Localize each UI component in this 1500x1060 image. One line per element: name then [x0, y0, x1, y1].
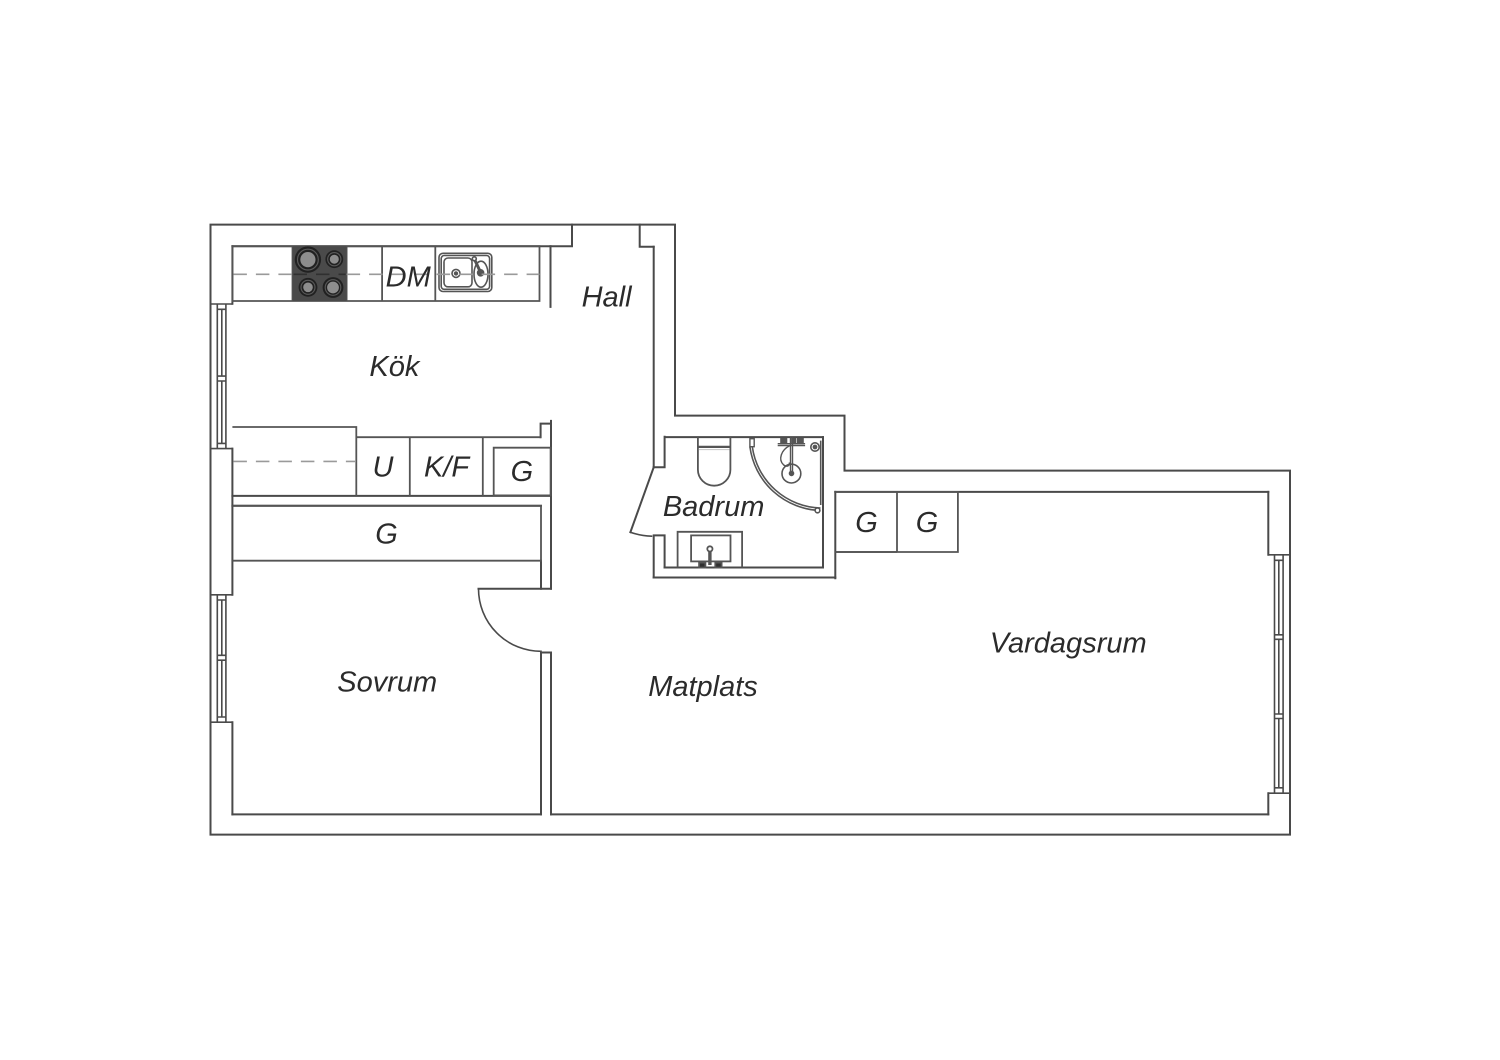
- svg-text:Matplats: Matplats: [648, 671, 758, 703]
- svg-text:Hall: Hall: [582, 282, 634, 314]
- svg-text:U: U: [373, 452, 395, 484]
- svg-text:G: G: [855, 507, 878, 539]
- svg-text:Sovrum: Sovrum: [337, 666, 437, 698]
- svg-text:Vardagsrum: Vardagsrum: [990, 628, 1147, 660]
- svg-text:K/F: K/F: [424, 452, 471, 484]
- svg-text:Kök: Kök: [369, 351, 420, 383]
- svg-text:G: G: [511, 456, 534, 488]
- svg-text:Badrum: Badrum: [663, 491, 765, 523]
- svg-text:DM: DM: [386, 262, 432, 294]
- svg-text:G: G: [916, 507, 939, 539]
- svg-text:G: G: [375, 519, 398, 551]
